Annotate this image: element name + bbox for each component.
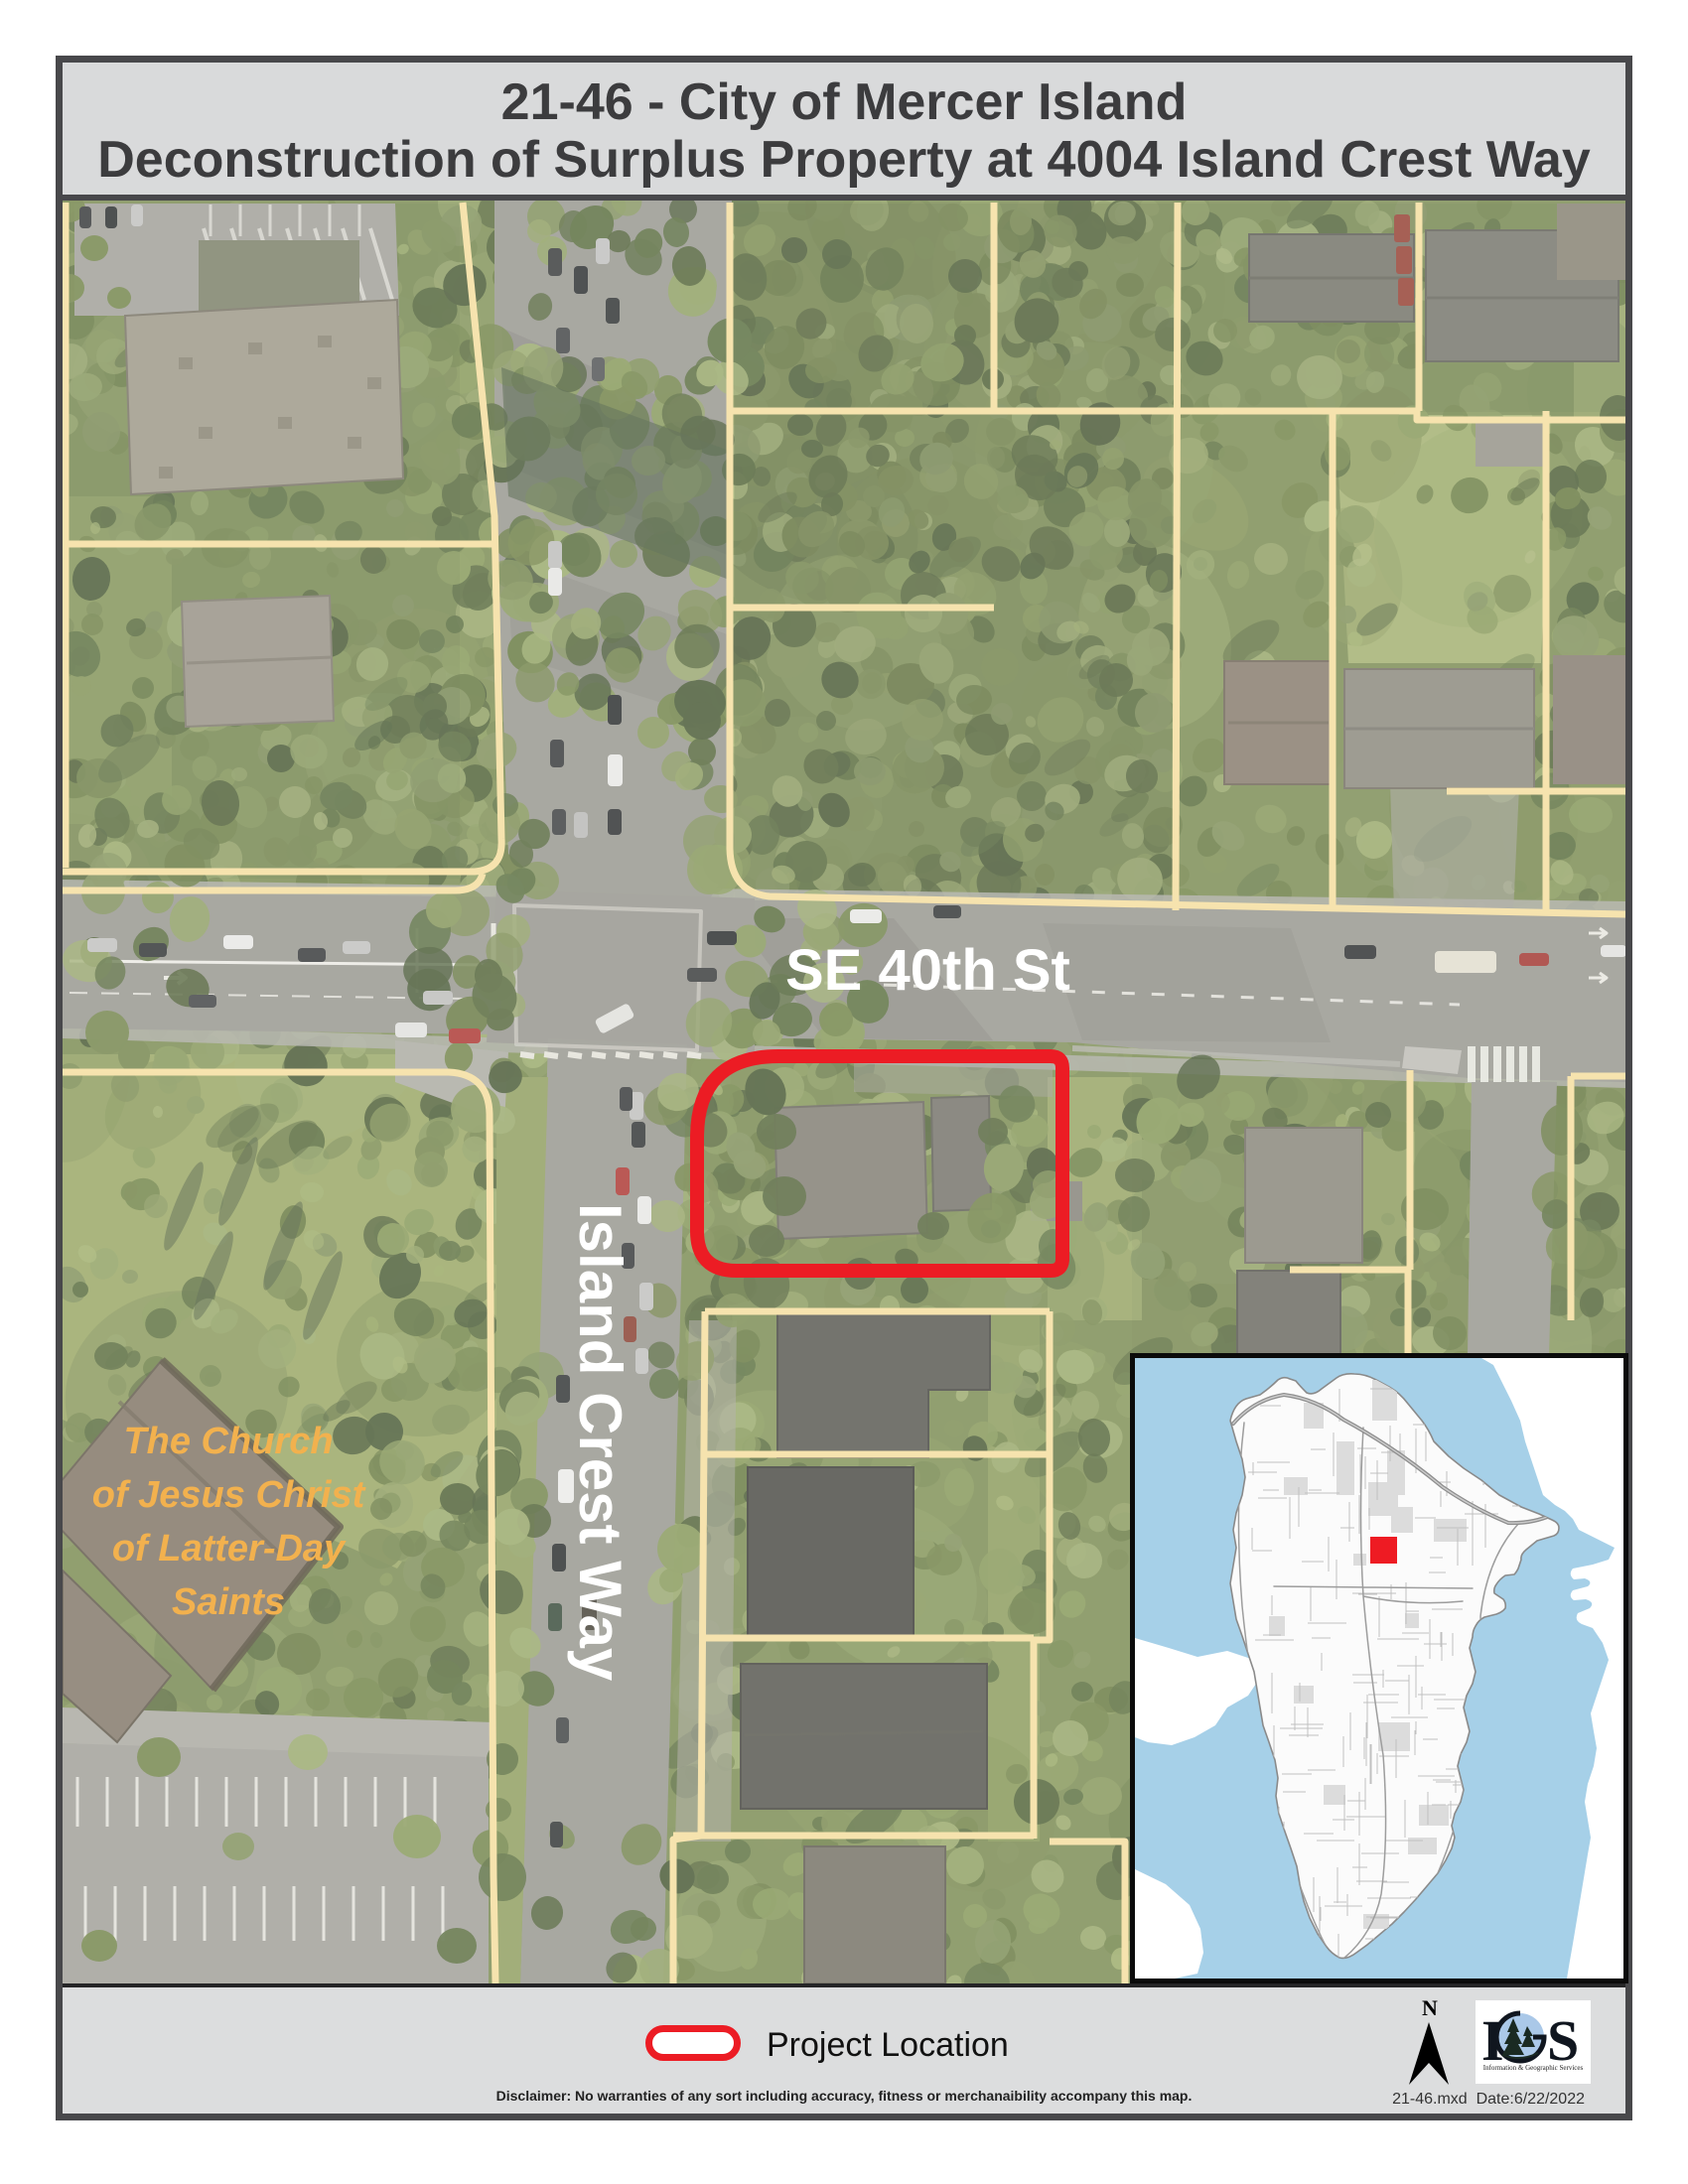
svg-text:of Jesus Christ: of Jesus Christ bbox=[92, 1474, 366, 1516]
svg-text:Island Crest Way: Island Crest Way bbox=[567, 1203, 633, 1682]
svg-text:Saints: Saints bbox=[172, 1581, 285, 1623]
svg-text:of Latter-Day: of Latter-Day bbox=[112, 1528, 347, 1570]
svg-text:SE 40th St: SE 40th St bbox=[785, 938, 1070, 1003]
svg-text:The Church: The Church bbox=[123, 1421, 333, 1462]
